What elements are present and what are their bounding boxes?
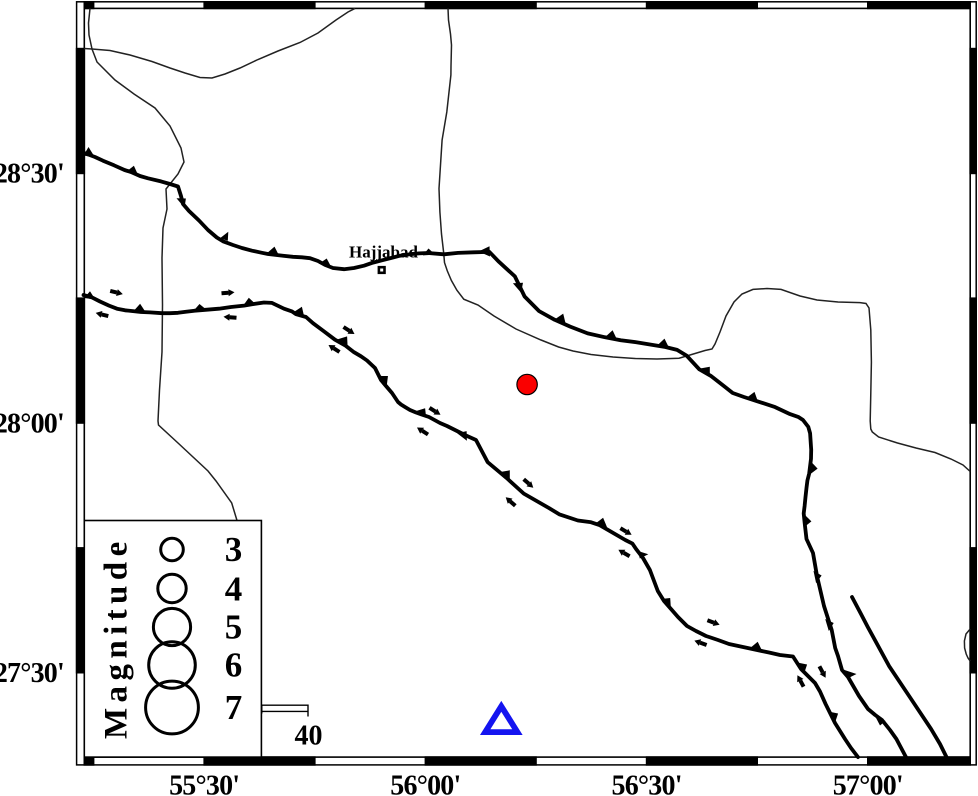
svg-text:6: 6 <box>225 646 243 685</box>
svg-text:5: 5 <box>225 608 243 647</box>
svg-text:55°30': 55°30' <box>169 770 239 796</box>
svg-text:7: 7 <box>225 688 243 727</box>
svg-text:27°30': 27°30' <box>0 658 64 689</box>
svg-text:40: 40 <box>295 720 323 751</box>
svg-text:28°00': 28°00' <box>0 408 64 439</box>
svg-text:4: 4 <box>225 570 243 609</box>
svg-text:28°30': 28°30' <box>0 159 64 190</box>
svg-text:Hajjabad: Hajjabad <box>349 242 419 261</box>
svg-text:57°00': 57°00' <box>833 770 903 796</box>
svg-text:3: 3 <box>225 530 243 569</box>
svg-text:Magnitude: Magnitude <box>99 536 135 739</box>
svg-text:56°30': 56°30' <box>612 770 682 796</box>
svg-text:56°00': 56°00' <box>390 770 460 796</box>
